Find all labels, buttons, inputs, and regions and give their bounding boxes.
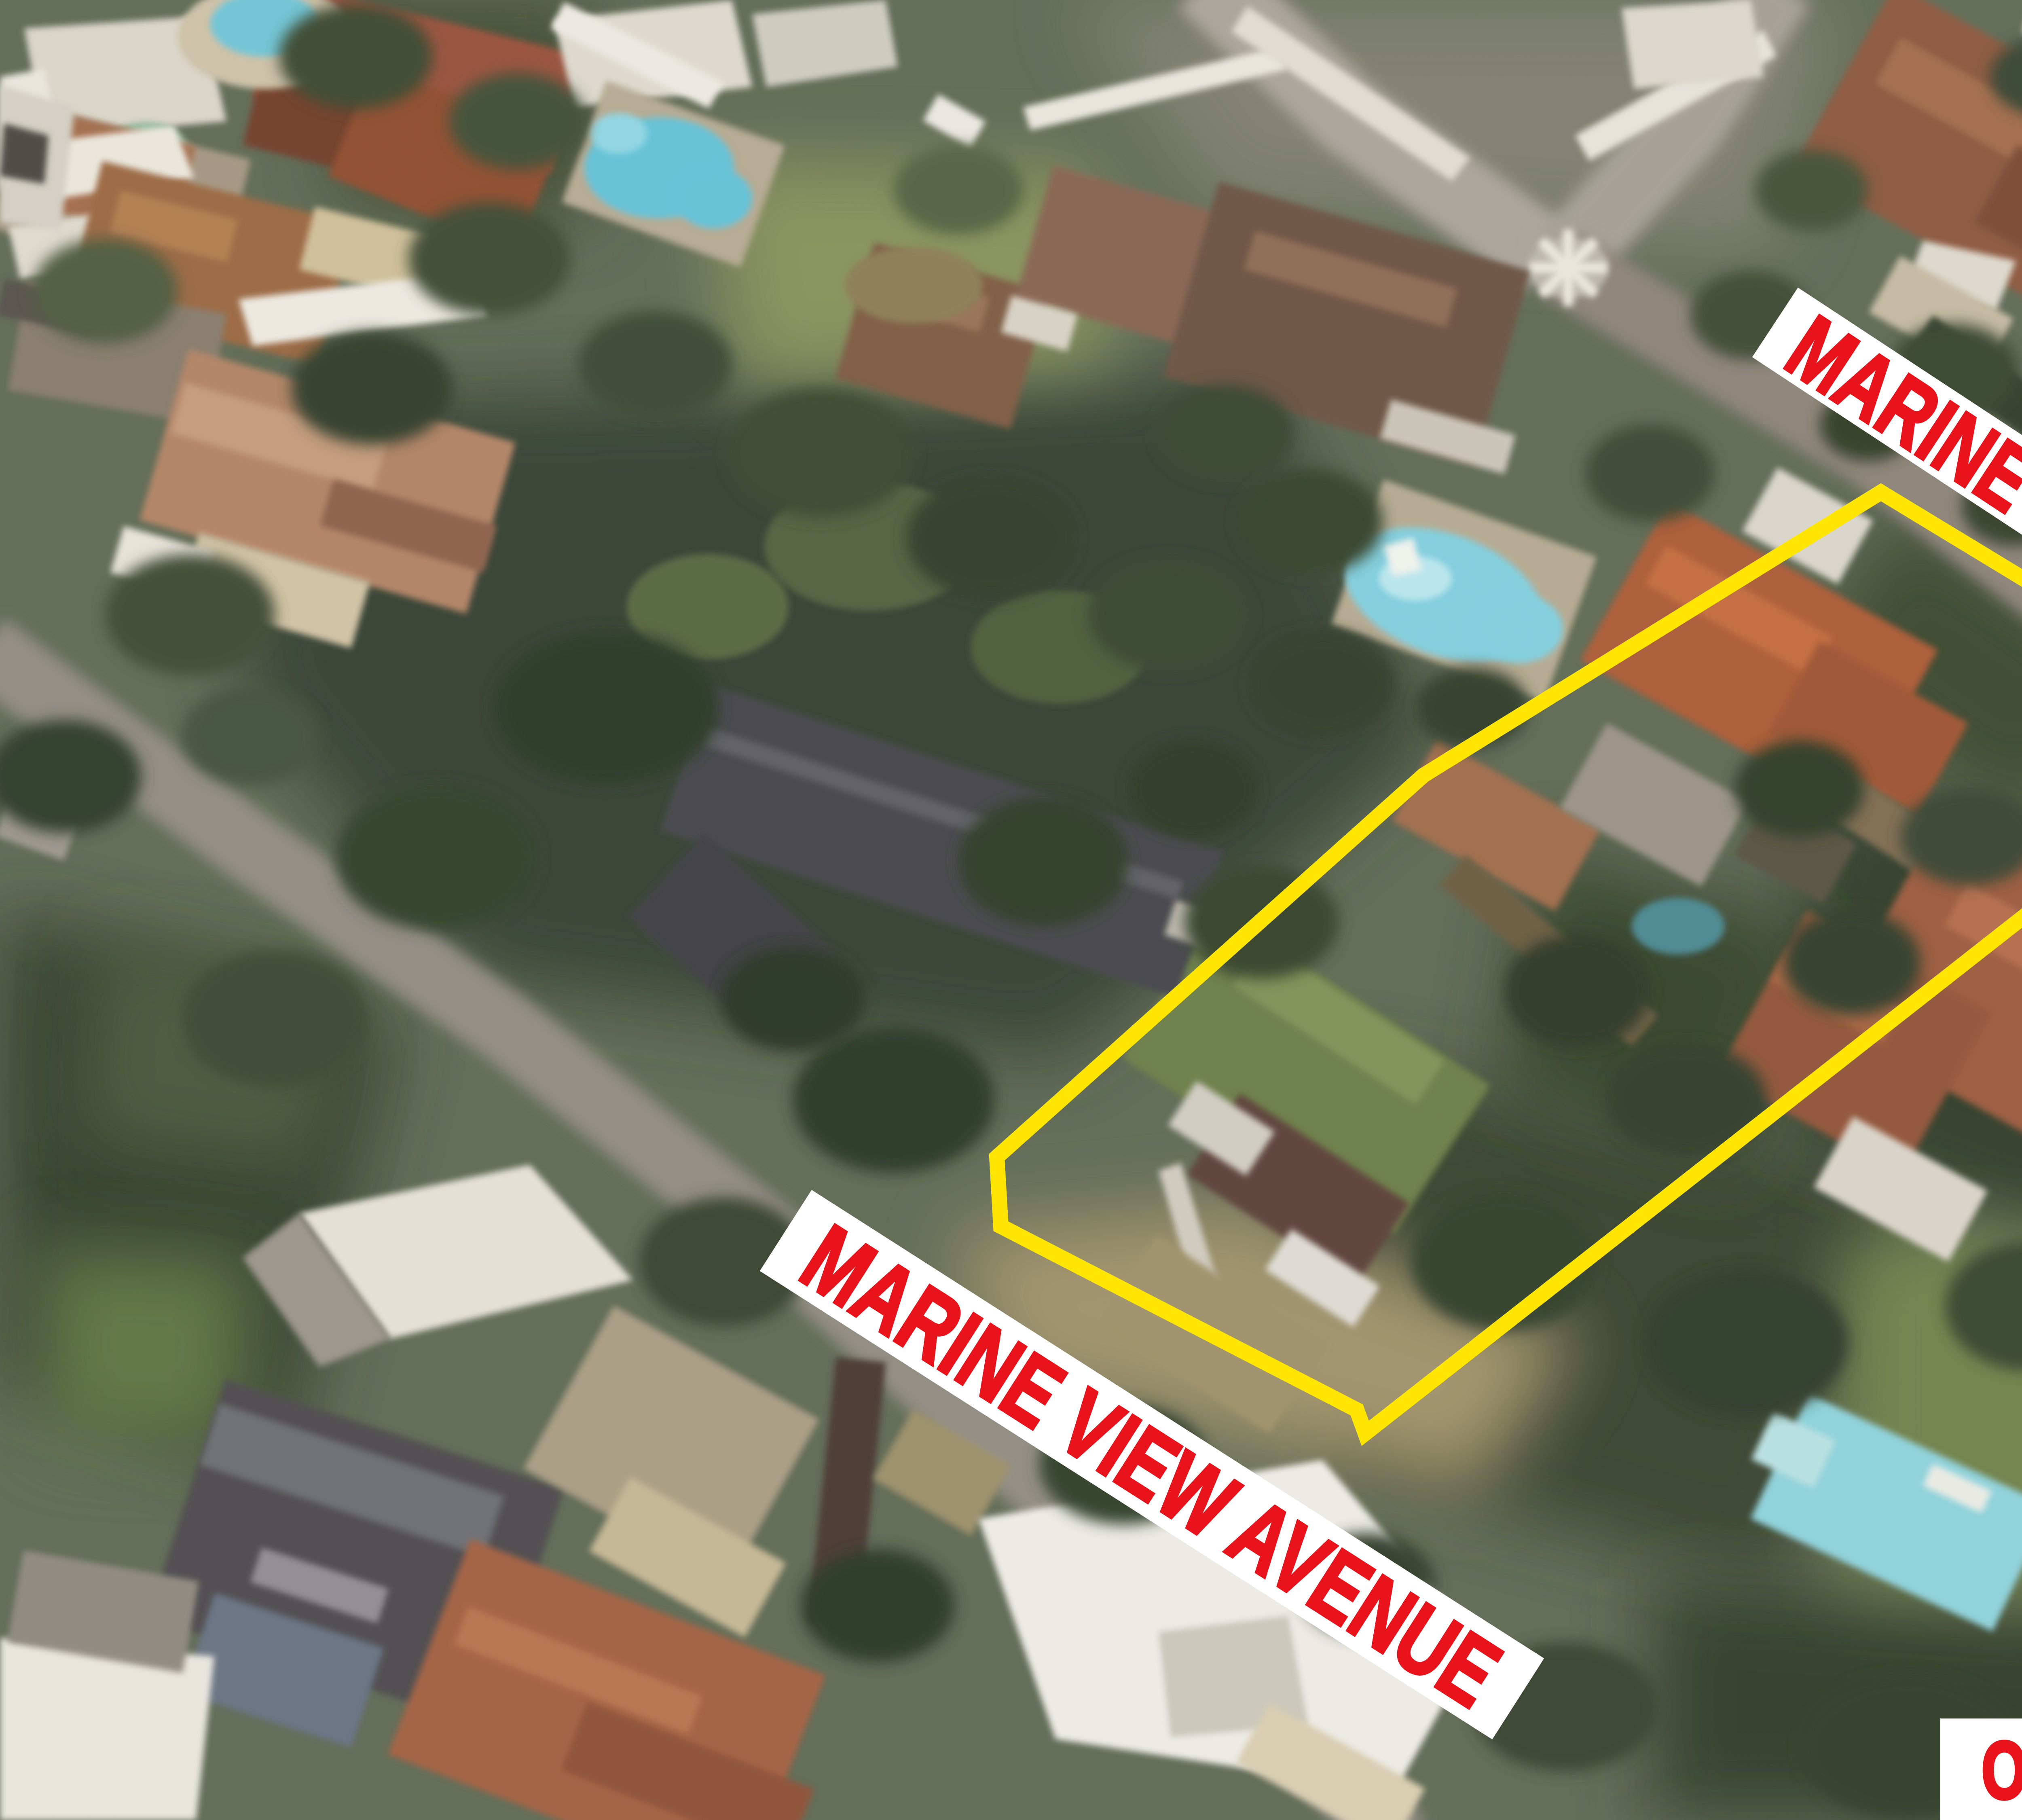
svg-text:OUTLINE TO BE USED AS GUIDELIN: OUTLINE TO BE USED AS GUIDELINE ONLY <box>1982 1725 2022 1815</box>
